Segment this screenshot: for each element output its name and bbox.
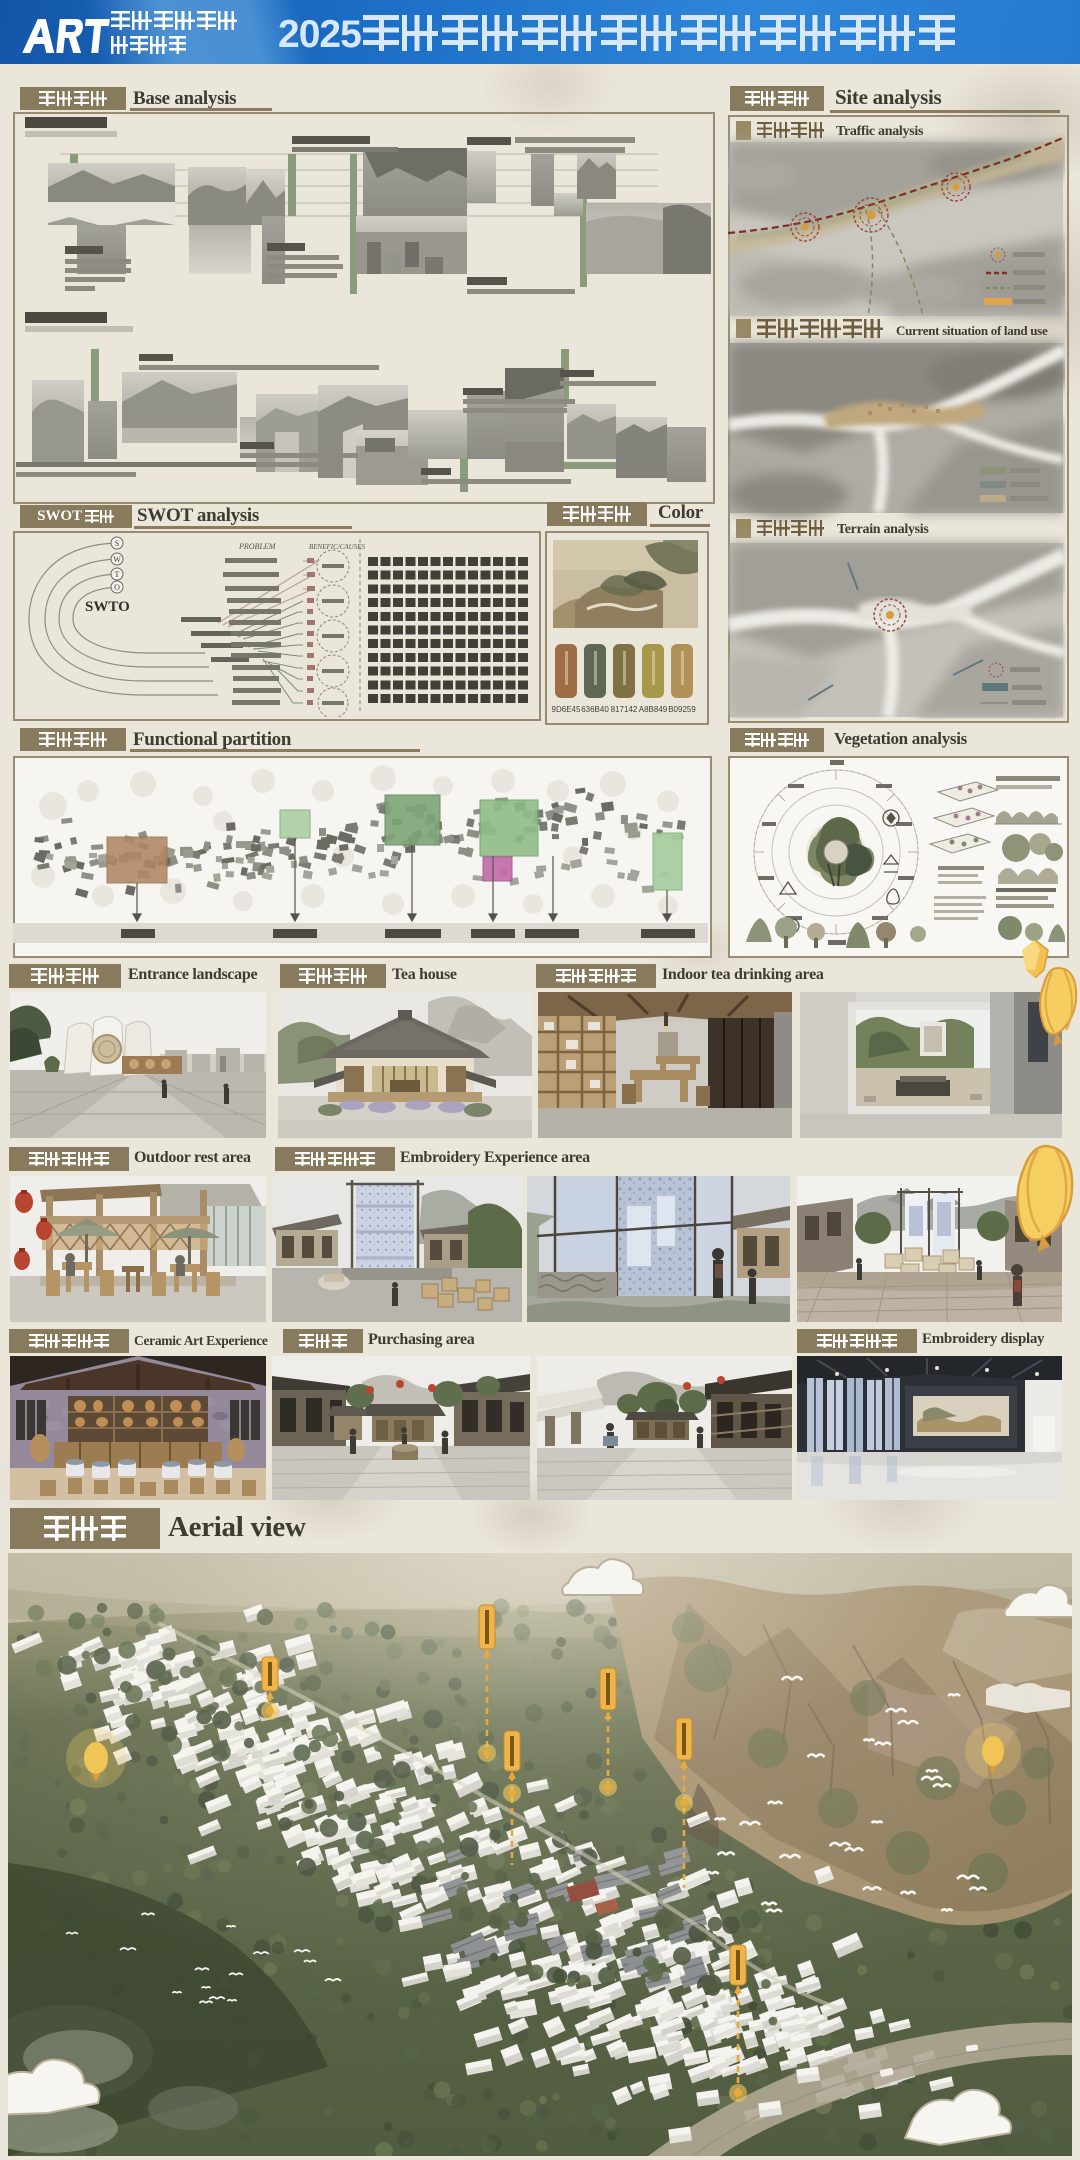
svg-text:SWTO: SWTO bbox=[85, 599, 130, 615]
svg-text:B09259: B09259 bbox=[668, 705, 696, 714]
svg-text:817142: 817142 bbox=[611, 705, 638, 714]
svg-text:PROBLEM: PROBLEM bbox=[238, 542, 277, 551]
svg-text:A8B849: A8B849 bbox=[639, 705, 668, 714]
svg-text:9D6E45: 9D6E45 bbox=[552, 705, 581, 714]
svg-text:T: T bbox=[115, 570, 120, 579]
svg-text:O: O bbox=[114, 583, 120, 592]
svg-text:S: S bbox=[115, 539, 119, 548]
svg-text:636B40: 636B40 bbox=[581, 705, 609, 714]
svg-text:W: W bbox=[113, 555, 121, 564]
svg-text:BENEFIC/CAUSES: BENEFIC/CAUSES bbox=[309, 543, 365, 551]
